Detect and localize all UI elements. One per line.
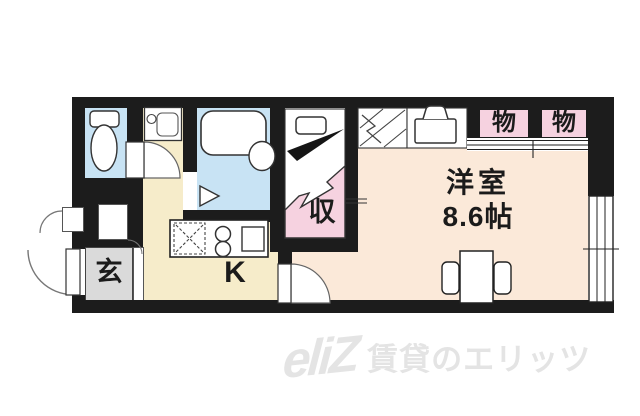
table-with-chairs-icon xyxy=(442,251,511,303)
sliding-window-icon xyxy=(583,196,619,302)
kitchen-counter-icon xyxy=(170,220,268,257)
kitchen-label: K xyxy=(210,257,260,289)
toilet-icon xyxy=(90,111,119,171)
western-room-label: 洋室 xyxy=(400,168,556,197)
washroom-door-arc-icon xyxy=(126,142,180,178)
front-door-arc-icon xyxy=(28,211,80,295)
floor-plan-page: { "meta": { "type": "japanese-apartment-… xyxy=(0,0,640,416)
washbasin-icon xyxy=(145,108,182,141)
closet-label: 収 xyxy=(300,198,344,226)
storage-left-label: 物 xyxy=(478,110,530,135)
loft-ladder-hatch-icon xyxy=(358,108,407,148)
storage-right-label: 物 xyxy=(540,110,588,135)
genkan-cabinet-arc-icon xyxy=(128,240,142,254)
watermark-text: 賃貸のエリッツ xyxy=(367,344,591,375)
closet-door-tick xyxy=(346,199,367,203)
watermark: eliZ 賃貸のエリッツ xyxy=(283,332,591,382)
kitchen-sink-icon xyxy=(242,227,264,251)
closet-shelf-icon xyxy=(296,117,326,134)
storage-sliding-track xyxy=(467,138,588,158)
western-room-size-label: 8.6帖 xyxy=(400,202,556,231)
bathtub-icon xyxy=(201,111,275,171)
watermark-logo: eliZ xyxy=(281,328,358,386)
kitchen-room-door-arc-icon xyxy=(278,264,330,303)
entrance-label: 玄 xyxy=(87,258,131,286)
washer-pan-x-icon xyxy=(174,223,205,254)
washing-machine-icon xyxy=(407,106,467,148)
bath-folding-door-triangle-icon xyxy=(200,186,219,206)
